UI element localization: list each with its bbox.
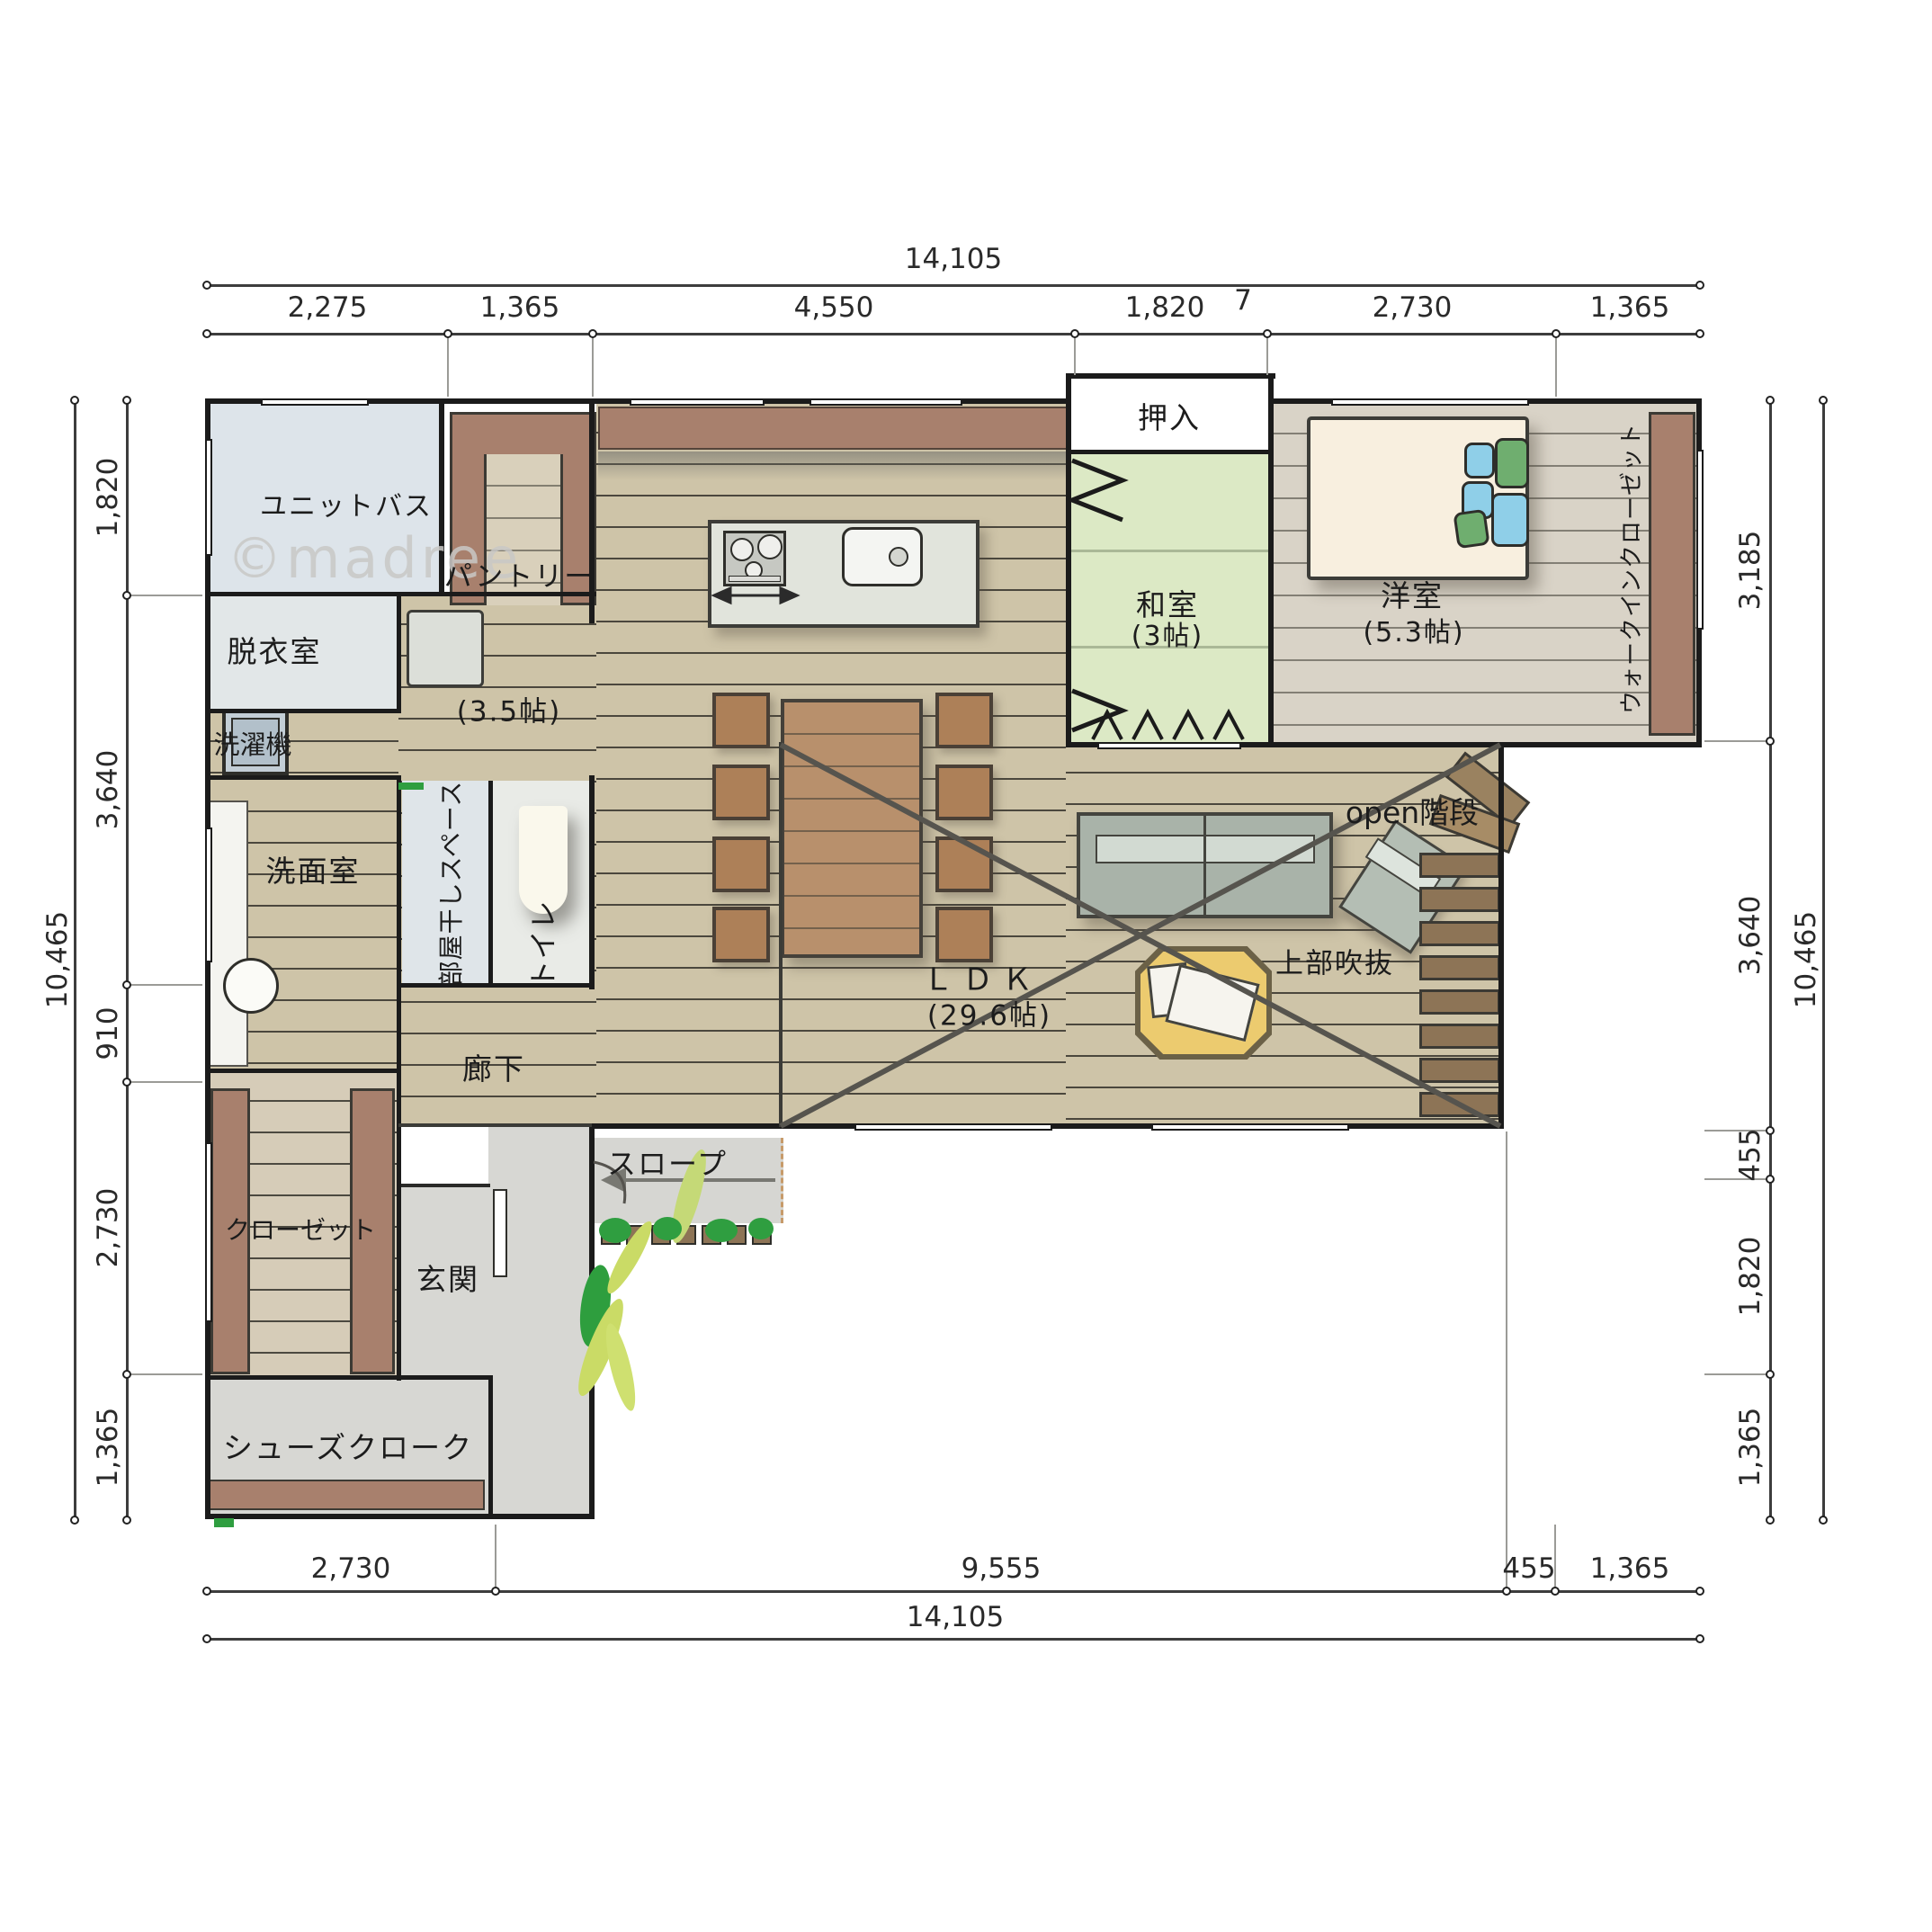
wall: [488, 1375, 493, 1517]
window: [1696, 450, 1704, 630]
dining-chair: [935, 836, 993, 892]
dim-extension: [592, 335, 594, 397]
room-label-washroom: 洗面室: [266, 847, 361, 890]
dim-tick: [122, 1370, 131, 1379]
room-label-shoe-cloak: シューズクローク: [223, 1424, 473, 1467]
dim-line-right-segments: [1769, 400, 1772, 1520]
window: [809, 398, 962, 406]
room-label-hallway: 廊下: [462, 1045, 525, 1088]
room-label-youshitsu: 洋室: [1381, 572, 1444, 615]
dim-top-seg-4: 1,820: [1125, 291, 1205, 324]
dim-top-seg-1: 2,275: [288, 291, 368, 324]
stove-grill-bar: [729, 576, 781, 582]
room-label-unit-bath: ユニットバス: [260, 484, 433, 523]
dining-chair: [712, 907, 770, 962]
dim-tick: [1766, 1126, 1775, 1135]
sliding-door: [1097, 742, 1241, 749]
dim-left-seg-2: 3,640: [92, 750, 124, 830]
dim-extension: [129, 984, 202, 986]
slope-post: [601, 1225, 621, 1245]
dim-left-seg-1: 1,820: [92, 458, 124, 538]
slope-post: [626, 1225, 646, 1245]
dim-top-seg-2: 1,365: [480, 291, 560, 324]
washroom-sink: [223, 958, 279, 1014]
dim-tick: [1263, 329, 1272, 338]
dim-right-seg-2: 3,640: [1734, 896, 1767, 976]
kitchen-counter: [598, 407, 1069, 450]
window: [854, 1123, 1052, 1131]
dining-chair: [935, 693, 993, 748]
room-label-oshiire: 押入: [1138, 394, 1201, 437]
wall: [1066, 373, 1071, 744]
dining-chair: [712, 765, 770, 820]
dim-bottom-seg-3: 455: [1502, 1552, 1555, 1585]
dim-extension: [129, 1081, 202, 1083]
stair-step: [1419, 1058, 1500, 1083]
dim-tick: [1695, 1587, 1704, 1596]
dim-tick: [1766, 1370, 1775, 1379]
dim-tick: [122, 591, 131, 600]
entrance-door: [493, 1189, 507, 1277]
wall: [1268, 373, 1274, 744]
window: [1331, 398, 1529, 406]
dim-left-seg-3: 910: [92, 1006, 124, 1060]
room-label-closet: クローゼット: [225, 1211, 376, 1247]
wall: [488, 781, 493, 988]
vanity-counter: [209, 801, 248, 1067]
dim-tick: [1502, 1587, 1511, 1596]
dim-tick: [491, 1587, 500, 1596]
dim-tick: [1766, 737, 1775, 746]
stair-step: [1419, 921, 1500, 946]
dim-tick: [70, 396, 79, 405]
room-label-dressing: 脱衣室: [228, 628, 322, 671]
dim-tick: [588, 329, 597, 338]
wall: [1498, 742, 1504, 1129]
dim-tick: [122, 1516, 131, 1525]
floor-plan-canvas: ©madree ユニットバス 脱衣室 洗濯機 パントリー (3.5帖) 洗面室 …: [0, 0, 1932, 1932]
wall: [205, 775, 401, 780]
dim-extension: [447, 335, 449, 397]
slope-post: [651, 1225, 671, 1245]
dim-extension: [1266, 335, 1268, 375]
room-label-washer: 洗濯機: [213, 724, 291, 762]
dim-extension: [1555, 335, 1557, 397]
stair-step: [1419, 1024, 1500, 1049]
dim-tick: [1819, 396, 1828, 405]
dim-extension: [1506, 1131, 1507, 1588]
dim-tick: [1552, 329, 1561, 338]
label-slope: スロープ: [607, 1141, 728, 1183]
dim-left-seg-5: 1,365: [92, 1408, 124, 1488]
dim-line-right-overall: [1822, 400, 1825, 1520]
dim-extension: [1074, 335, 1076, 375]
wall: [589, 1123, 595, 1519]
dim-right-seg-3: 455: [1734, 1128, 1767, 1181]
window: [630, 398, 765, 406]
dim-extension: [495, 1525, 496, 1588]
dim-extension: [129, 595, 202, 596]
dim-extension: [129, 1373, 202, 1375]
stair-step: [1419, 1092, 1500, 1117]
dim-tick: [122, 396, 131, 405]
dim-top-seg-3: 4,550: [794, 291, 874, 324]
dim-line-left-overall: [74, 400, 76, 1520]
stair-step: [1419, 955, 1500, 980]
dim-tick: [1551, 1587, 1560, 1596]
dim-tick: [1766, 1516, 1775, 1525]
dim-tick: [1766, 396, 1775, 405]
label-open-stairs: open階段: [1346, 789, 1479, 832]
wic-wardrobe: [1649, 412, 1695, 736]
dim-line-bottom-segments: [207, 1590, 1700, 1593]
room-label-pantry-size: (3.5帖): [457, 689, 562, 729]
room-label-washitsu-size: (3帖): [1131, 613, 1204, 653]
void-boundary: [779, 742, 783, 1127]
window: [1151, 1123, 1349, 1131]
dim-extension: [1704, 1373, 1767, 1375]
pillow-blue: [1491, 493, 1529, 547]
wall: [205, 709, 401, 713]
sofa-divider: [1203, 814, 1206, 917]
dim-tick: [1070, 329, 1079, 338]
shoe-shelf: [209, 1480, 485, 1510]
dim-tick: [202, 281, 211, 290]
dim-bottom-seg-1: 2,730: [311, 1552, 391, 1585]
dim-bottom-total: 14,105: [907, 1601, 1004, 1633]
kitchen-counter-shadow: [598, 452, 1069, 480]
slope-post: [676, 1225, 696, 1245]
dim-top-stray-7: 7: [1234, 284, 1252, 317]
stove-burner-1: [730, 538, 754, 561]
dim-right-seg-4: 1,820: [1734, 1237, 1767, 1317]
dim-tick: [70, 1516, 79, 1525]
stove-burner-2: [757, 534, 783, 559]
wall: [589, 775, 595, 989]
hall-cabinet: [407, 610, 484, 687]
tatami-line-1: [1069, 550, 1271, 552]
stair-step: [1419, 989, 1500, 1015]
dim-right-seg-1: 3,185: [1734, 531, 1767, 611]
dim-tick: [443, 329, 452, 338]
wall: [205, 1069, 401, 1073]
slope-post: [727, 1225, 747, 1245]
wall: [397, 775, 401, 1075]
dim-tick: [202, 1587, 211, 1596]
sink-faucet: [889, 547, 908, 567]
dim-left-seg-4: 2,730: [92, 1188, 124, 1268]
stair-step: [1419, 853, 1500, 878]
room-label-toilet: トイレ: [521, 899, 562, 988]
room-label-drying-space: 部屋干しスペース: [432, 781, 468, 987]
window: [205, 827, 212, 962]
room-label-youshitsu-size: (5.3帖): [1363, 610, 1464, 649]
room-label-ldk-size: (29.6帖): [927, 993, 1051, 1033]
room-label-wic: ウォークインクローゼット: [1614, 423, 1647, 714]
dim-line-top-overall: [207, 284, 1700, 287]
dim-tick: [202, 1634, 211, 1643]
dim-tick: [1766, 1175, 1775, 1184]
dim-tick: [1695, 281, 1704, 290]
dim-tick: [122, 980, 131, 989]
dining-chair: [712, 836, 770, 892]
wall: [205, 1514, 594, 1519]
slope-post: [702, 1225, 721, 1245]
dining-chair: [935, 765, 993, 820]
dim-bottom-seg-4: 1,365: [1590, 1552, 1670, 1585]
dim-top-total: 14,105: [905, 243, 1002, 275]
window: [205, 439, 212, 556]
dining-chair: [712, 693, 770, 748]
dining-table: [781, 699, 923, 958]
wall: [1066, 373, 1275, 379]
pillow-green: [1453, 509, 1489, 550]
wall: [1066, 450, 1273, 454]
genkan-step-line: [398, 1184, 490, 1187]
slope-post: [752, 1225, 772, 1245]
dim-tick: [1695, 329, 1704, 338]
wall: [397, 1070, 401, 1381]
dim-tick: [1695, 1634, 1704, 1643]
window: [205, 1142, 212, 1322]
dim-extension: [1704, 740, 1767, 742]
wall: [205, 1375, 493, 1380]
wall: [398, 983, 595, 988]
pillow-green: [1495, 438, 1529, 488]
sink: [842, 527, 923, 586]
wall: [397, 594, 401, 711]
dim-tick: [202, 329, 211, 338]
dim-top-seg-6: 1,365: [1590, 291, 1670, 324]
toilet-fixture: [519, 806, 568, 914]
label-void-above: 上部吹抜: [1275, 941, 1394, 981]
dim-tick: [1819, 1516, 1828, 1525]
pillow-blue: [1464, 443, 1495, 479]
room-label-genkan: 玄関: [416, 1256, 479, 1299]
window: [261, 398, 369, 406]
dim-tick: [122, 1078, 131, 1087]
dim-line-bottom-overall: [207, 1638, 1700, 1641]
dim-line-top-segments: [207, 333, 1700, 335]
stair-step: [1419, 887, 1500, 912]
dim-right-total: 10,465: [1790, 911, 1822, 1008]
dim-bottom-seg-2: 9,555: [962, 1552, 1042, 1585]
dim-right-seg-5: 1,365: [1734, 1408, 1767, 1488]
room-label-pantry: パントリー: [444, 554, 595, 595]
dim-top-seg-5: 2,730: [1373, 291, 1453, 324]
dim-left-total: 10,465: [41, 911, 74, 1008]
genkan-edge: [398, 1123, 592, 1127]
floor-genkan-right: [488, 1127, 592, 1514]
dim-line-left-segments: [126, 400, 129, 1520]
